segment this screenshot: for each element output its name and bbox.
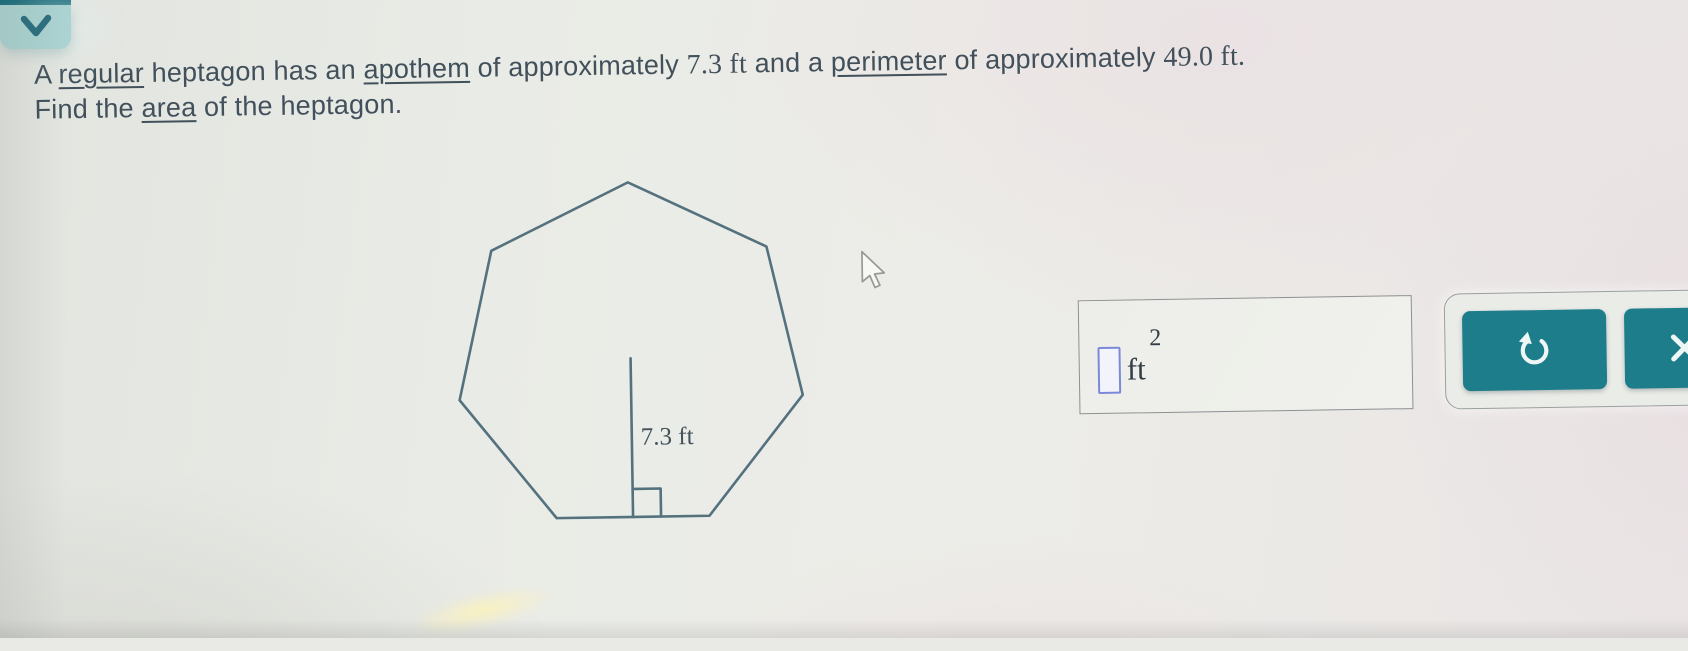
photo-vignette <box>0 0 1688 638</box>
